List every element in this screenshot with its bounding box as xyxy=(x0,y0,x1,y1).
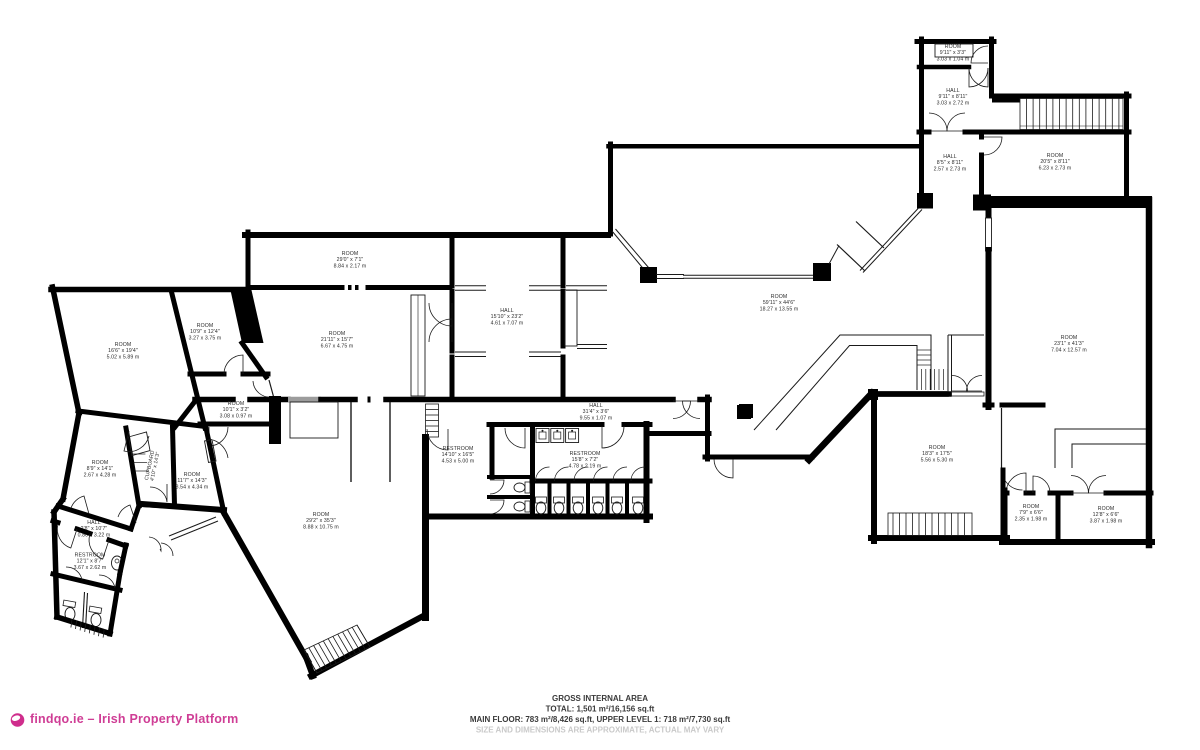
svg-text:RESTROOM14'10" x 16'5"4.53 x 5: RESTROOM14'10" x 16'5"4.53 x 5.00 m xyxy=(442,446,475,464)
svg-text:SIZE AND DIMENSIONS ARE APPROX: SIZE AND DIMENSIONS ARE APPROXIMATE, ACT… xyxy=(476,726,725,735)
svg-text:findqo.ie – Irish Property Pla: findqo.ie – Irish Property Platform xyxy=(30,712,238,726)
svg-text:MAIN FLOOR: 783 m²/8,426 sq.ft: MAIN FLOOR: 783 m²/8,426 sq.ft, UPPER LE… xyxy=(470,715,731,724)
svg-text:RESTROOM12'1" x 8'7"3.67 x 2.6: RESTROOM12'1" x 8'7"3.67 x 2.62 m xyxy=(74,553,107,571)
svg-text:GROSS INTERNAL AREA: GROSS INTERNAL AREA xyxy=(552,694,648,703)
svg-text:TOTAL: 1,501 m²/16,156 sq.ft: TOTAL: 1,501 m²/16,156 sq.ft xyxy=(546,705,655,714)
svg-text:RESTROOM15'8" x 7'2"4.78 x 2.1: RESTROOM15'8" x 7'2"4.78 x 2.19 m xyxy=(569,451,602,469)
